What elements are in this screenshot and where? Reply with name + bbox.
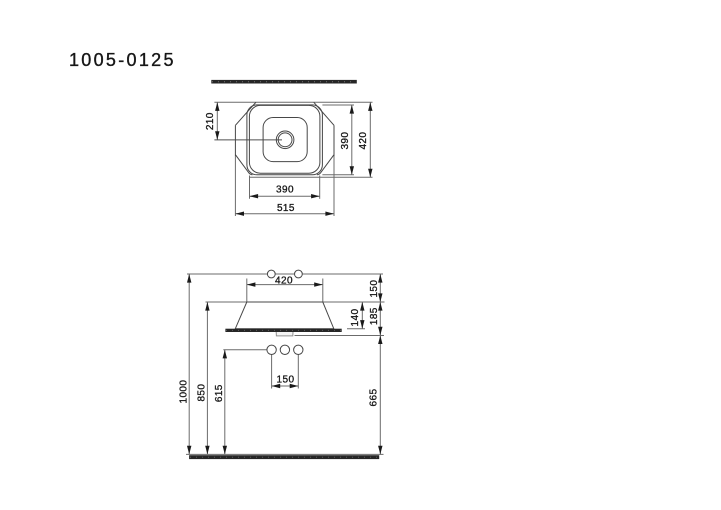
svg-text:390: 390 [340,132,351,150]
svg-text:515: 515 [277,203,295,214]
svg-text:210: 210 [205,112,216,130]
svg-text:420: 420 [275,276,293,287]
svg-text:665: 665 [369,389,380,407]
svg-text:420: 420 [358,132,369,150]
svg-text:1005-0125: 1005-0125 [69,50,176,70]
svg-text:150: 150 [369,280,380,298]
svg-text:140: 140 [350,309,361,327]
svg-text:615: 615 [214,384,225,402]
svg-text:850: 850 [197,384,208,402]
svg-text:150: 150 [277,375,295,386]
svg-text:185: 185 [369,307,380,325]
svg-text:1000: 1000 [179,380,190,404]
svg-text:390: 390 [276,185,294,196]
